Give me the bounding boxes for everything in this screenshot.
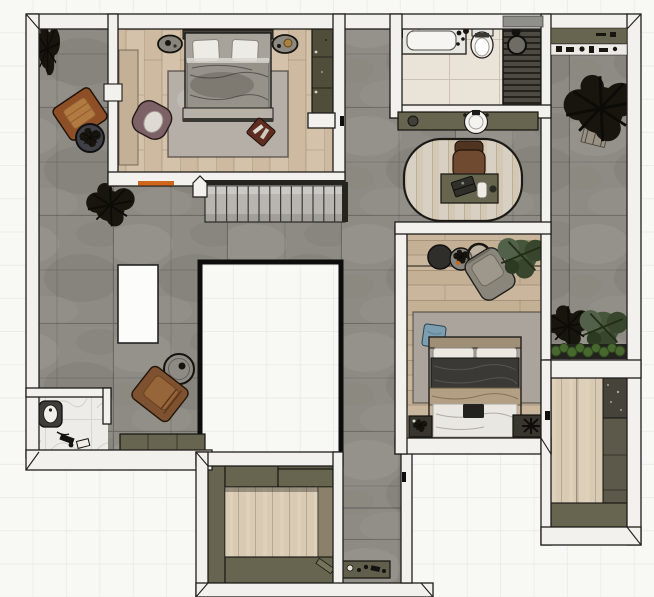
wall-bottom-center — [196, 583, 433, 597]
patio-side-table — [76, 124, 104, 152]
wall-lightwell-right — [390, 14, 402, 118]
wall-lightwell-left — [333, 14, 345, 186]
bed1-duvet-shade — [190, 72, 254, 98]
wall-bedroom1-stub — [308, 113, 335, 128]
closet-wood-floor — [225, 487, 318, 557]
walk-in-closet — [208, 466, 334, 583]
wall-bedroom2-top — [395, 222, 551, 234]
wardrobe1 — [312, 29, 333, 115]
bedroom1-door-jamb — [104, 84, 122, 101]
wall-powder-top — [26, 388, 111, 397]
handle-corridor — [402, 472, 406, 482]
floor-plan-canvas[interactable] — [0, 0, 654, 597]
wall-bedroom2-left — [395, 226, 407, 454]
floor-plan-image — [0, 0, 654, 597]
void-opening — [200, 262, 341, 460]
closet-cabinet-left — [208, 466, 225, 583]
right-room-plank-highlight — [577, 378, 587, 503]
desk — [441, 174, 498, 203]
orange-door-marker — [138, 181, 174, 186]
handle-bedroom1 — [340, 116, 344, 126]
wall-terrace-room-band — [545, 360, 641, 378]
wall-corridor-right — [401, 452, 412, 583]
bathroom-window — [503, 16, 543, 27]
stair-end-cap — [342, 182, 348, 222]
closet-shelf-top-b — [278, 469, 333, 487]
staircase — [193, 176, 348, 222]
nightstand-right — [273, 35, 298, 53]
wall-right — [627, 14, 641, 545]
right-wardrobe-room — [551, 378, 627, 527]
entry-console — [342, 561, 390, 578]
bed1-sheet-fold — [187, 58, 269, 63]
desk-trinket — [489, 185, 496, 192]
wall-powder-right — [103, 388, 111, 424]
island-table — [118, 265, 158, 343]
dresser — [119, 50, 138, 165]
shower — [503, 28, 541, 106]
bedroom2-nightstand-right — [513, 415, 543, 437]
closet-cabinet-bottom — [225, 557, 333, 583]
bathtub — [402, 27, 466, 54]
low-bench — [120, 434, 205, 451]
stair-rail — [205, 180, 345, 185]
right-room-cabinet-bottom — [551, 503, 627, 527]
closet-floor-shadow — [225, 487, 318, 492]
vanity — [398, 110, 538, 134]
closet-side-panel — [318, 487, 333, 557]
stair-void — [200, 262, 341, 460]
wall-bedroom2-bottom — [395, 438, 551, 454]
bed2-tray — [463, 404, 484, 418]
handle-right-room — [545, 411, 550, 420]
closet-shelf-top-a — [225, 466, 278, 487]
wall-closet-left — [196, 452, 208, 597]
wall-bedroom1-left-a — [108, 14, 118, 86]
wall-bottom-left — [26, 450, 212, 470]
planter-box — [551, 344, 627, 360]
utility-shelf — [551, 28, 627, 55]
bed1 — [183, 30, 273, 122]
nightstand-left — [158, 36, 182, 53]
wall-closet-right — [333, 452, 343, 597]
bedroom2-nightstand-left — [409, 416, 432, 437]
wall-right-room-bottom — [541, 527, 641, 545]
right-room-dark-shelf — [603, 378, 627, 418]
desk-chair — [453, 141, 485, 178]
cup — [477, 182, 487, 198]
floor-lightwell — [345, 29, 390, 118]
wall-closet-top — [196, 452, 343, 466]
